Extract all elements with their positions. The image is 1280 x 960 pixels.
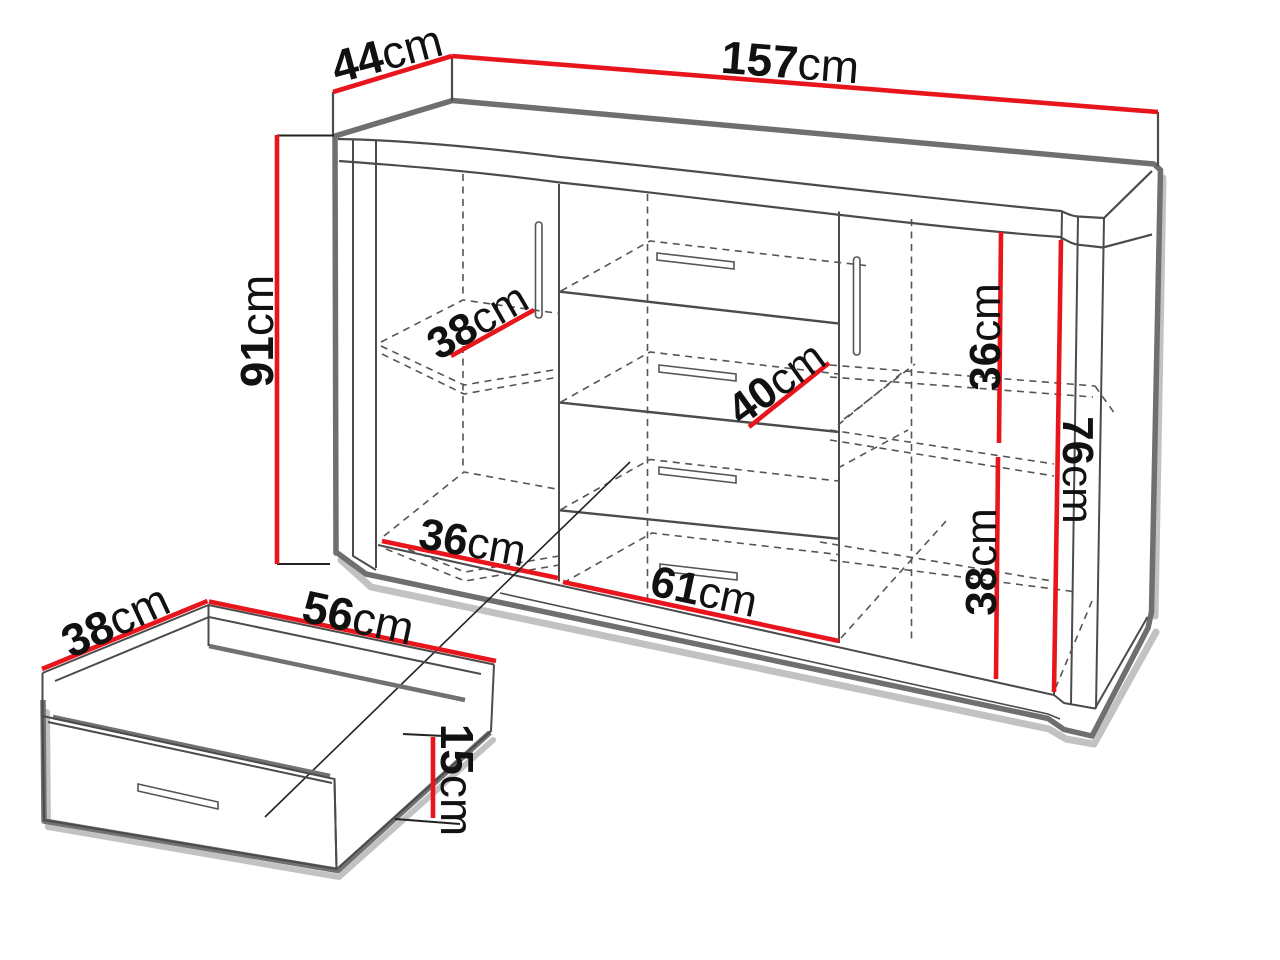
svg-text:91cm: 91cm	[231, 275, 283, 388]
svg-text:36cm: 36cm	[961, 283, 1010, 391]
svg-text:38cm: 38cm	[957, 508, 1006, 616]
svg-text:76cm: 76cm	[1053, 416, 1102, 524]
svg-text:157cm: 157cm	[719, 31, 861, 94]
svg-text:15cm: 15cm	[431, 724, 483, 837]
